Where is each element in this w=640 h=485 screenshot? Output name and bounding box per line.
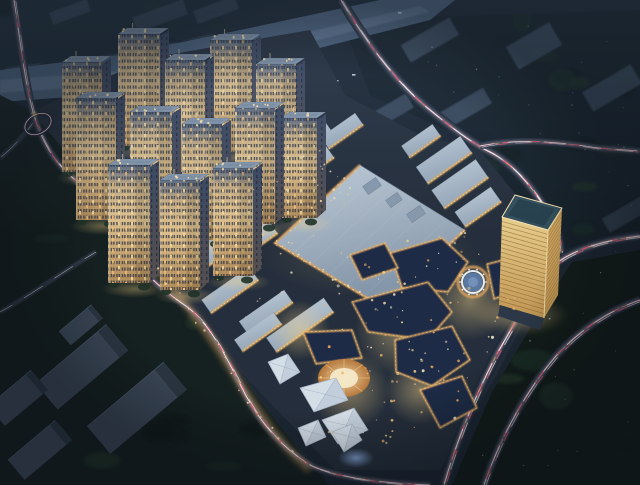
blue-cast xyxy=(0,0,640,485)
aerial-night-rendering xyxy=(0,0,640,485)
rendering-canvas xyxy=(0,0,640,485)
